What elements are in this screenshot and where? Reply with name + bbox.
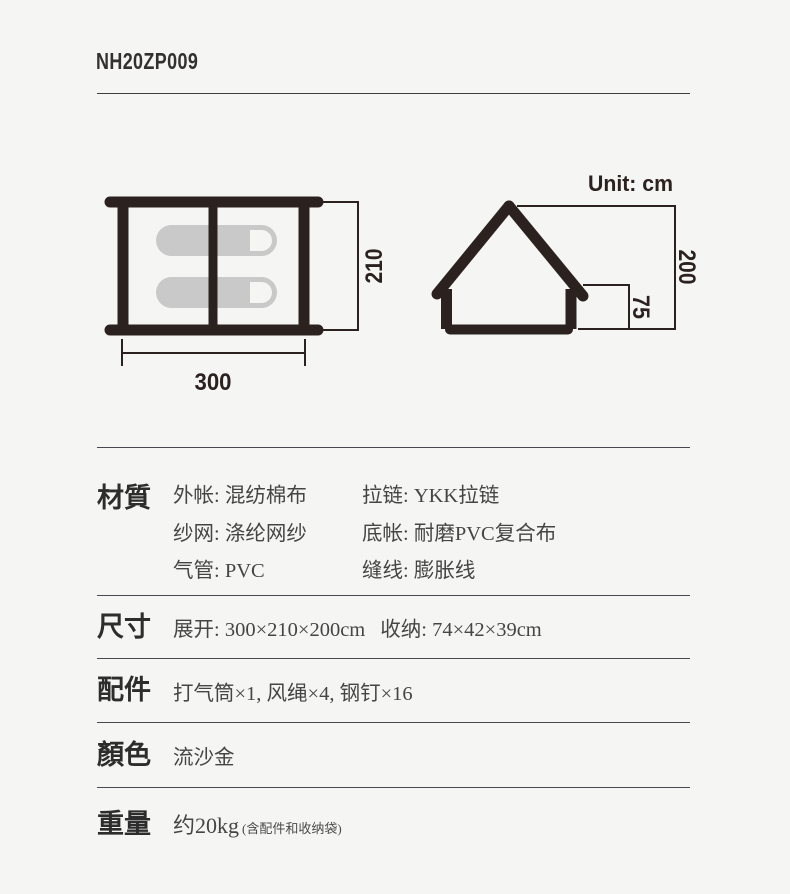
material-column-2: 拉链: YKK拉链 底帐: 耐磨PVC复合布 缝线: 膨胀线: [362, 478, 556, 591]
tent-top-view-diagram: 210 300: [110, 202, 388, 396]
weight-label: 重量: [97, 811, 173, 838]
material-outer-tent: 外帐: 混纺棉布: [173, 478, 362, 516]
dim-label-peak-height: 200: [673, 250, 700, 285]
weight-value: 约20kg: [173, 808, 239, 840]
weight-values: 约20kg (含配件和收纳袋): [173, 808, 342, 840]
roof-right-slope: [509, 206, 583, 296]
size-packed: 收纳: 74×42×39cm: [380, 619, 542, 641]
size-expanded: 展开: 300×210×200cm: [173, 619, 365, 641]
dim-label-width: 300: [195, 369, 232, 396]
spec-row-weight: 重量 约20kg (含配件和收纳袋): [97, 787, 690, 860]
unit-label: Unit: cm: [588, 171, 673, 196]
material-values: 外帐: 混纺棉布 纱网: 涤纶网纱 气管: PVC 拉链: YKK拉链 底帐: …: [173, 448, 556, 591]
spec-sheet-page: NH20ZP009 210 300 Unit: cm: [0, 0, 790, 894]
accessories-label: 配件: [97, 677, 173, 704]
pillow-outline-bottom: [250, 282, 272, 303]
material-zipper: 拉链: YKK拉链: [362, 478, 556, 516]
material-mesh: 纱网: 涤纶网纱: [173, 516, 362, 554]
material-air-tube: 气管: PVC: [173, 553, 362, 591]
spec-row-size: 尺寸 展开: 300×210×200cm收纳: 74×42×39cm: [97, 595, 690, 658]
pillow-outline-top: [250, 230, 272, 251]
size-label: 尺寸: [97, 614, 173, 641]
dim-label-depth: 210: [361, 249, 388, 284]
material-column-1: 外帐: 混纺棉布 纱网: 涤纶网纱 气管: PVC: [173, 478, 362, 591]
material-seam: 缝线: 膨胀线: [362, 553, 556, 591]
color-label: 顏色: [97, 742, 173, 769]
dim-label-wall-height: 75: [627, 295, 654, 319]
accessories-value: 打气筒×1, 风绳×4, 钢钉×16: [173, 676, 413, 706]
spec-table: 材質 外帐: 混纺棉布 纱网: 涤纶网纱 气管: PVC 拉链: YKK拉链 底…: [97, 447, 690, 860]
spec-row-color: 顏色 流沙金: [97, 722, 690, 787]
tent-side-view-diagram: Unit: cm 200 75: [437, 171, 700, 330]
tent-dimension-diagrams: 210 300 Unit: cm 200 75: [0, 0, 790, 420]
material-floor: 底帐: 耐磨PVC复合布: [362, 516, 556, 554]
roof-left-slope: [437, 206, 509, 294]
spec-row-accessories: 配件 打气筒×1, 风绳×4, 钢钉×16: [97, 658, 690, 722]
color-value: 流沙金: [173, 740, 235, 770]
size-values: 展开: 300×210×200cm收纳: 74×42×39cm: [173, 612, 542, 642]
material-label: 材質: [97, 448, 173, 512]
spec-row-material: 材質 外帐: 混纺棉布 纱网: 涤纶网纱 气管: PVC 拉链: YKK拉链 底…: [97, 447, 690, 595]
weight-note: (含配件和收纳袋): [242, 818, 342, 837]
